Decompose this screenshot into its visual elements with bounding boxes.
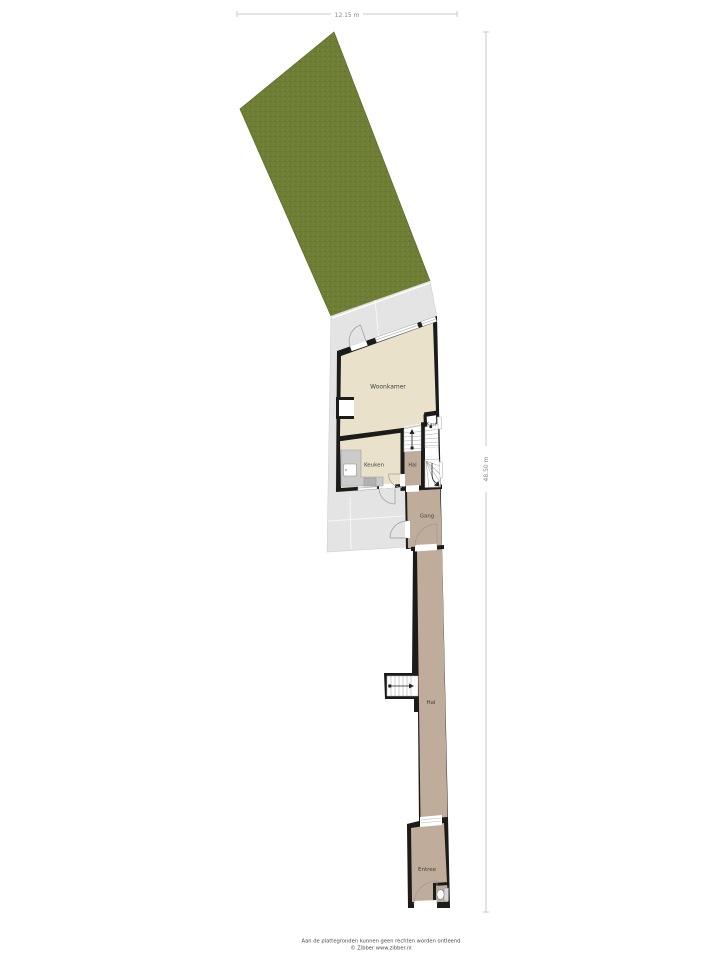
dimension-right: 48.50 m: [481, 32, 491, 912]
stair-landing: [425, 447, 439, 460]
footer-credit: © Zibber www.zibber.nl: [350, 945, 411, 952]
garden-area: [240, 32, 430, 316]
stove-icon: [364, 478, 376, 486]
label-kast: Kast: [427, 422, 437, 428]
footer: Aan de plattegronden kunnen geen rechten…: [302, 939, 461, 952]
opening-front-door: [414, 900, 437, 910]
label-hal: Hal: [408, 463, 416, 469]
dimension-label-depth: 48.50 m: [483, 456, 490, 481]
room-hal-floor: [404, 451, 421, 488]
faucet-icon: [345, 469, 347, 471]
dimension-label-width: 12.15 m: [335, 12, 360, 19]
wall-hal-stairs: [421, 424, 425, 489]
wall-wc-left: [433, 883, 436, 903]
label-keuken: Keuken: [364, 463, 385, 469]
door-gap-gang-terrace: [405, 521, 410, 538]
dimension-top: 12.15 m: [237, 9, 457, 19]
label-entree: Entree: [418, 867, 437, 873]
toilet-cistern: [444, 888, 449, 901]
floorplan-page: 12.15 m 48.50 m: [0, 0, 720, 960]
staircase-right: [425, 424, 441, 488]
opening-hal-gang: [406, 485, 419, 492]
staircase-hal: [404, 426, 421, 453]
stair-start-marker: [388, 685, 391, 688]
toilet-icon: [437, 890, 444, 900]
opening-keuken-hal: [400, 474, 405, 487]
label-gang: Gang: [420, 514, 435, 520]
label-woonkamer: Woonkamer: [370, 384, 406, 391]
footer-disclaimer: Aan de plattegronden kunnen geen rechten…: [302, 939, 461, 945]
label-hal2: Hal: [426, 700, 436, 706]
wall-stub: [421, 422, 425, 427]
staircase-hal2: [387, 676, 418, 696]
chimney-niche-inner: [339, 400, 354, 416]
floorplan-svg: 12.15 m 48.50 m: [0, 0, 720, 960]
